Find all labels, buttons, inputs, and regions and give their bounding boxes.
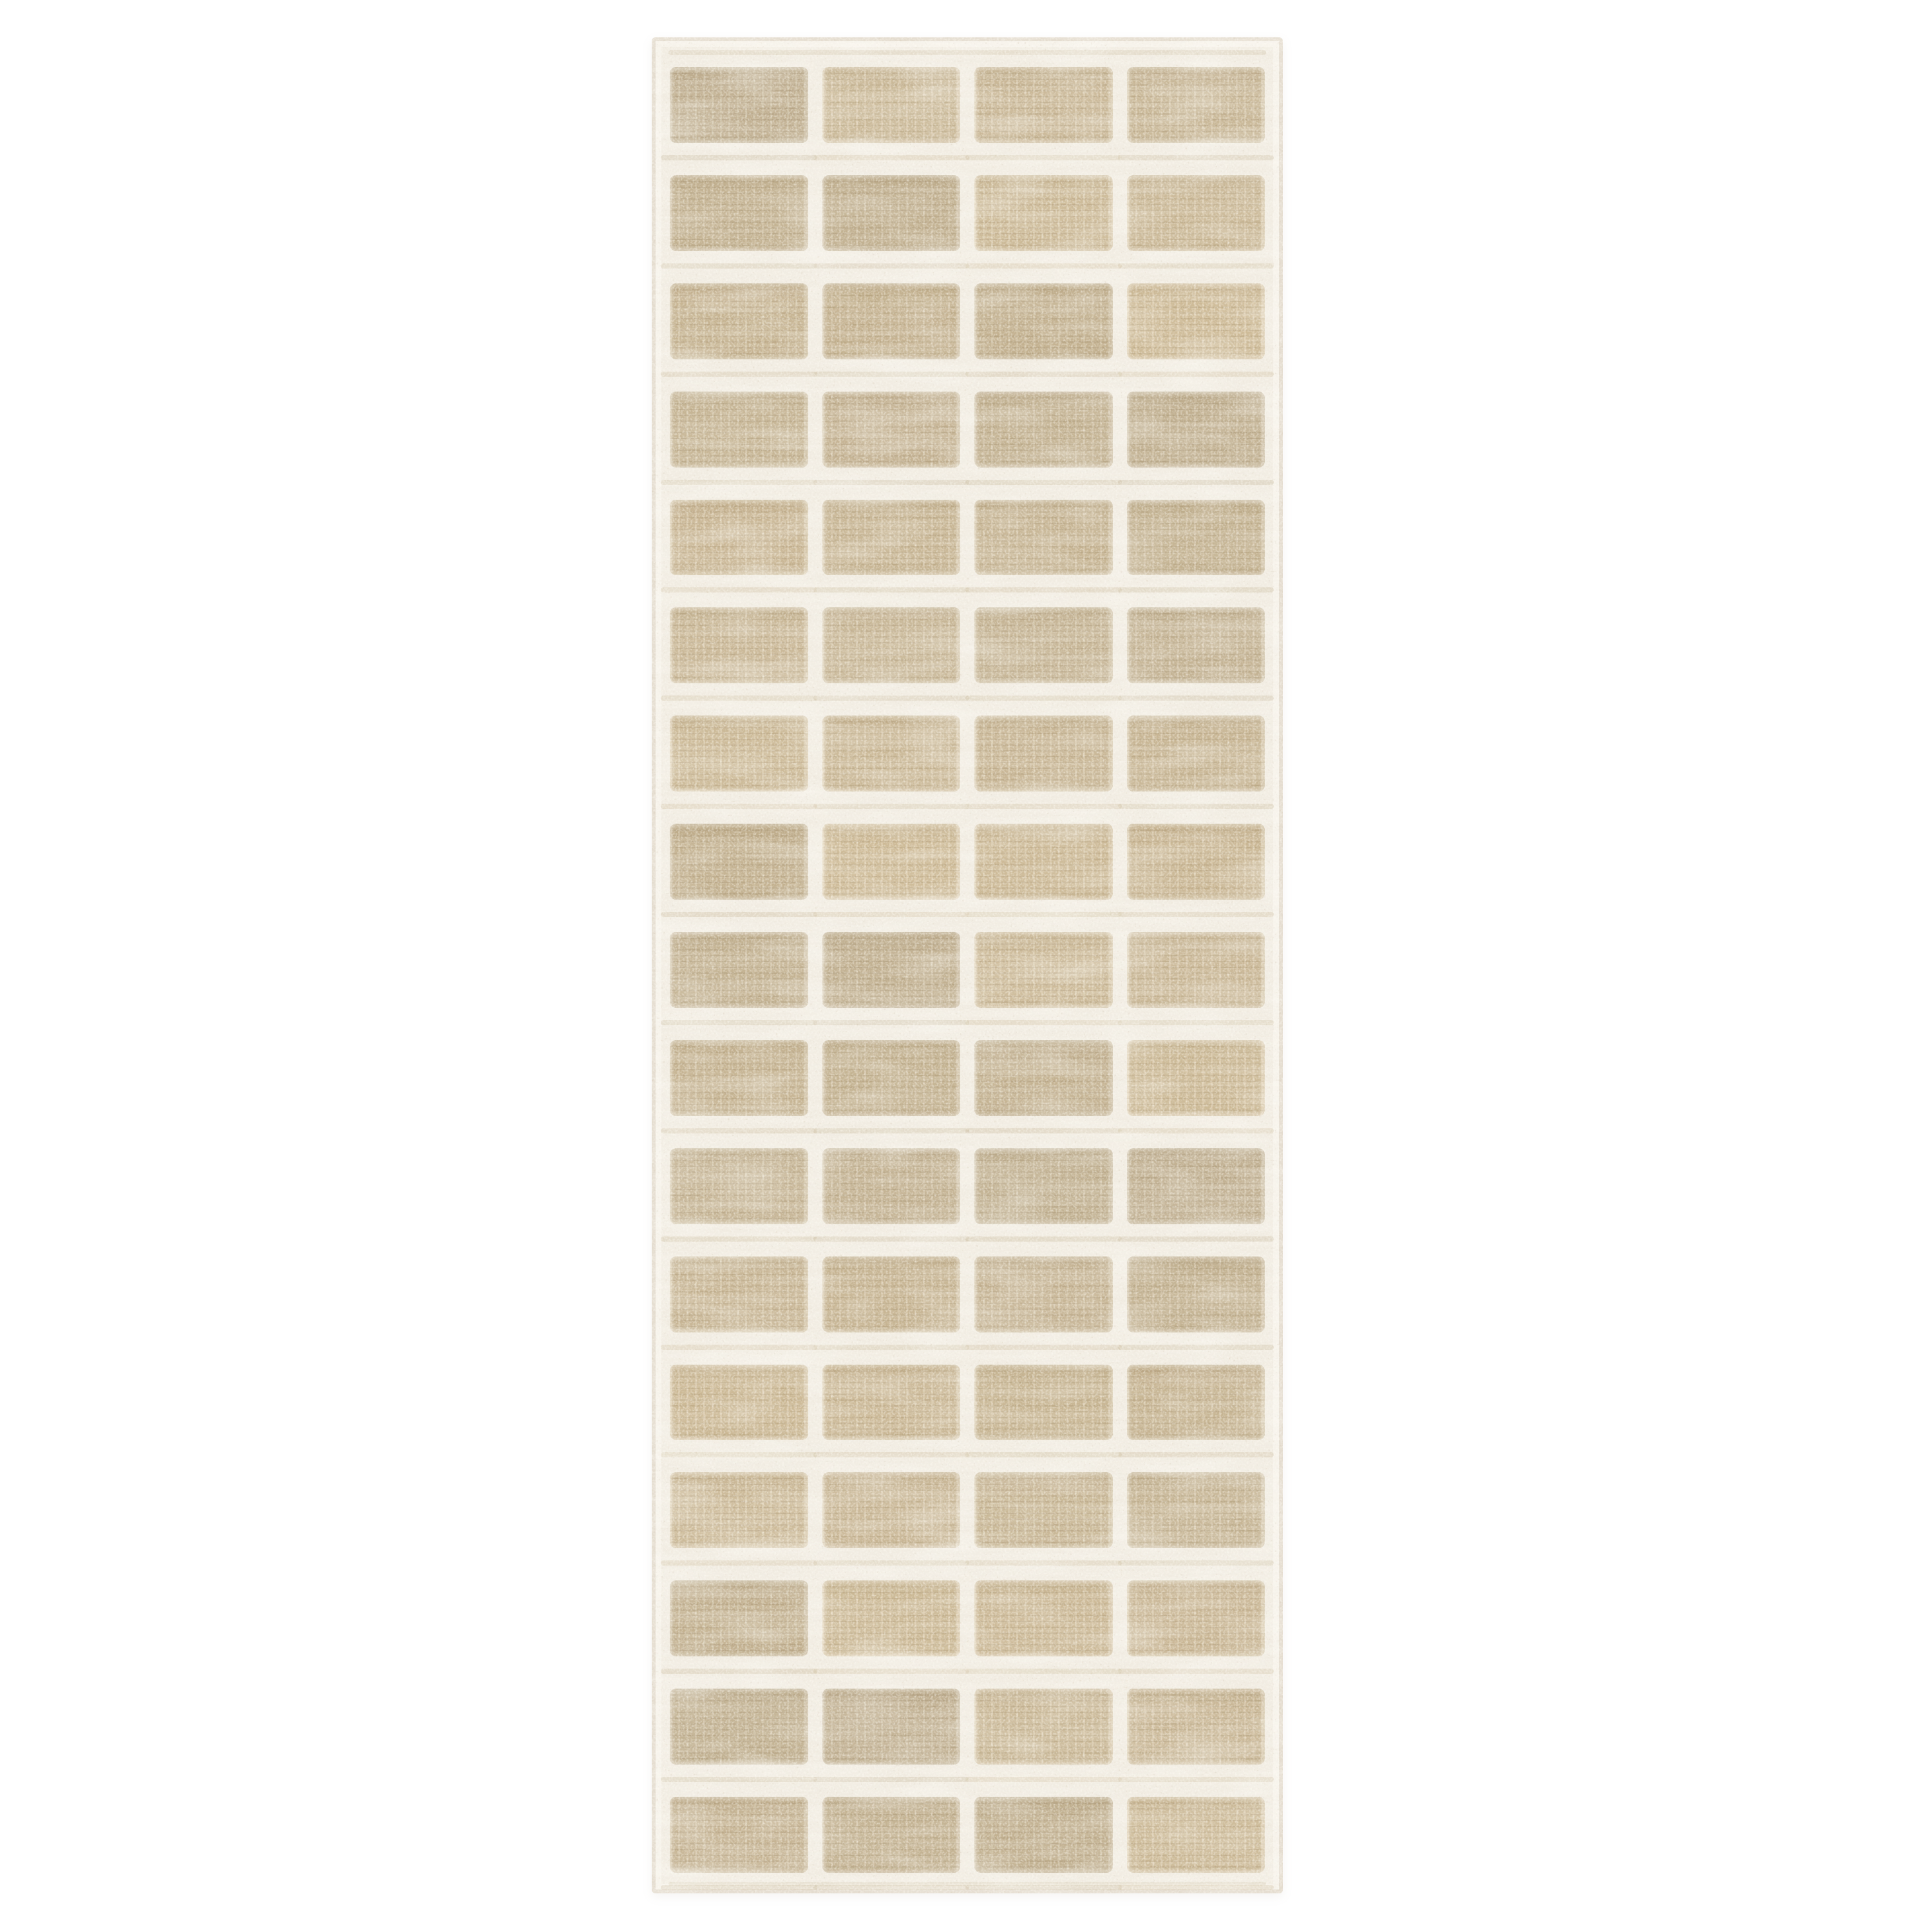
product-photo [0, 0, 1932, 1932]
rug-cell [822, 175, 961, 251]
rug-cell [1127, 1580, 1265, 1656]
rug-cell [1127, 1256, 1265, 1332]
rug-cell [1127, 392, 1265, 468]
rug-cell [1127, 824, 1265, 900]
rug-cell [1127, 1797, 1265, 1873]
rug-cell [1127, 1148, 1265, 1224]
rug-cell [670, 1040, 808, 1116]
rug [652, 37, 1283, 1893]
rug-cell [822, 1256, 961, 1332]
rug-cell [670, 607, 808, 683]
rug-cell [974, 500, 1113, 576]
rug-cell [822, 1689, 961, 1765]
rug-cell [822, 1797, 961, 1873]
rug-cell [1127, 1689, 1265, 1765]
rug-cell [670, 1256, 808, 1332]
rug-cell [822, 67, 961, 143]
rug-cell [670, 67, 808, 143]
rug-cell [974, 175, 1113, 251]
rug-cell [974, 392, 1113, 468]
rug-cell [670, 500, 808, 576]
rug-cell [670, 175, 808, 251]
rug-cell [822, 1365, 961, 1441]
rug-cell [1127, 715, 1265, 791]
rug-cell [670, 1689, 808, 1765]
rug-cell [974, 824, 1113, 900]
rug-cell [670, 283, 808, 359]
rug-cell [974, 715, 1113, 791]
rug-cell [670, 1472, 808, 1548]
rug-cell [822, 1472, 961, 1548]
rug-cell [822, 500, 961, 576]
rug-cell [822, 1040, 961, 1116]
rug-cell [1127, 500, 1265, 576]
rug-cell [1127, 67, 1265, 143]
rug-cell [1127, 1472, 1265, 1548]
rug-cell [974, 1689, 1113, 1765]
rug-cell [822, 824, 961, 900]
rug-cell [670, 1148, 808, 1224]
rug-cell [974, 1472, 1113, 1548]
rug-cell [670, 1580, 808, 1656]
rug-cell [1127, 932, 1265, 1008]
rug-cell [822, 283, 961, 359]
rug-cell [974, 283, 1113, 359]
rug-cell [670, 1365, 808, 1441]
rug-cell [822, 1148, 961, 1224]
rug-cell [822, 607, 961, 683]
rug-cell [670, 824, 808, 900]
rug-cell [974, 1365, 1113, 1441]
rug-cell [822, 715, 961, 791]
rug-cell [974, 1040, 1113, 1116]
rug-cell [822, 1580, 961, 1656]
rug-cell [974, 1580, 1113, 1656]
rug-cell [670, 392, 808, 468]
rug-cell [1127, 283, 1265, 359]
rug-cell [974, 607, 1113, 683]
rug-cell [1127, 175, 1265, 251]
rug-cell [822, 932, 961, 1008]
rug-cell [974, 67, 1113, 143]
rug-cell [1127, 1040, 1265, 1116]
rug-grid [670, 67, 1265, 1873]
rug-cell [974, 932, 1113, 1008]
rug-cell [974, 1256, 1113, 1332]
rug-cell [1127, 1365, 1265, 1441]
rug-cell [1127, 607, 1265, 683]
rug-cell [974, 1797, 1113, 1873]
rug-cell [670, 932, 808, 1008]
rug-cell [974, 1148, 1113, 1224]
rug-cell [670, 715, 808, 791]
rug-cell [822, 392, 961, 468]
rug-cell [670, 1797, 808, 1873]
